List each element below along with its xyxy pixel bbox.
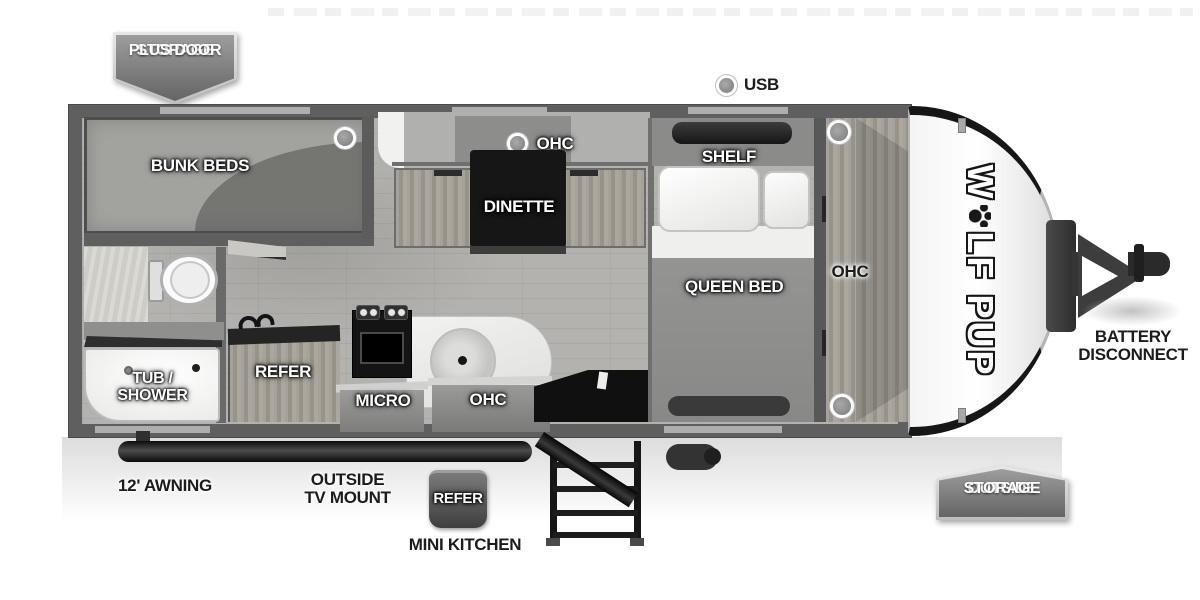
badge-border: OUTSIDE STORAGE <box>936 466 1068 520</box>
bunk-beds-label: BUNK BEDS <box>130 157 270 175</box>
refer-label: REFER <box>238 363 328 381</box>
ceiling-light-icon <box>830 123 848 141</box>
dinette-bench <box>394 168 474 248</box>
burner-grate <box>356 305 380 320</box>
step-rung <box>553 532 638 538</box>
window-segment <box>664 426 782 433</box>
entry-steps <box>544 438 654 546</box>
usb-indicator-icon <box>719 78 734 93</box>
sink-drain <box>458 356 467 365</box>
burner-grate <box>384 305 408 320</box>
bed-bolster <box>668 396 790 416</box>
hitch-shadow <box>1082 296 1182 326</box>
paw-print-icon <box>969 205 991 227</box>
toilet-seat <box>170 261 210 299</box>
front-ohc-label: OHC <box>826 263 874 281</box>
oven-window <box>360 332 404 364</box>
badge-face: OUTSIDE STORAGE <box>939 469 1065 517</box>
badge-line: STORAGE <box>964 480 1041 498</box>
tv-mount-line: TV MOUNT <box>280 489 415 507</box>
awning-tube <box>118 441 532 462</box>
hitch-pin <box>1134 244 1144 282</box>
table-base-shadow <box>470 246 566 254</box>
window-segment <box>95 426 210 433</box>
tub-shower-line: SHOWER <box>100 388 205 405</box>
floorplan-canvas: STORAGE PLUS DOOR USB BUNK BEDS TUB / SH… <box>0 0 1200 600</box>
pillow <box>658 166 760 232</box>
tub-shower-line: TUB / <box>100 371 205 388</box>
window-segment <box>688 107 788 114</box>
step-foot <box>630 538 644 546</box>
dinette-side-panel <box>378 112 404 168</box>
ceiling-light-icon <box>833 397 851 415</box>
brand-suffix: LF PUP <box>959 231 1001 377</box>
ceiling-light-icon <box>510 136 525 151</box>
tv-mount-line: OUTSIDE <box>280 471 415 489</box>
bench-bracket <box>434 170 462 176</box>
shelf-label: SHELF <box>700 148 758 166</box>
window-segment <box>160 107 310 114</box>
cropped-print-artifact <box>268 8 1193 16</box>
badge-face: STORAGE PLUS DOOR <box>116 35 234 101</box>
ceiling-light-icon <box>337 130 353 146</box>
dinette-bench <box>562 168 646 248</box>
awning-label: 12' AWNING <box>90 477 240 495</box>
outside-refer-label: REFER <box>432 491 484 507</box>
bench-bracket <box>570 170 598 176</box>
badge-border: STORAGE PLUS DOOR <box>113 32 237 104</box>
queen-bed-label: QUEEN BED <box>685 278 781 296</box>
micro-label: MICRO <box>345 392 421 410</box>
outside-tv-mount-label: OUTSIDE TV MOUNT <box>280 471 415 507</box>
underbody-tank-cap <box>704 448 721 465</box>
brand-prefix: W <box>959 165 1001 202</box>
dinette-label: DINETTE <box>483 198 555 216</box>
brand-logo: W LF PUP <box>958 121 1002 421</box>
tub-shower-label: TUB / SHOWER <box>100 371 205 405</box>
battery-disconnect-line: BATTERY <box>1068 328 1198 346</box>
battery-disconnect-label: BATTERY DISCONNECT <box>1068 328 1198 364</box>
battery-disconnect-line: DISCONNECT <box>1068 346 1198 364</box>
pillow <box>763 171 810 229</box>
interior-wall <box>362 117 374 239</box>
storage-plus-door-badge: STORAGE PLUS DOOR <box>113 32 237 104</box>
usb-label: USB <box>744 76 788 94</box>
kitchen-ohc-label: OHC <box>462 391 514 409</box>
shelf-bar <box>672 122 792 144</box>
outside-storage-badge: OUTSIDE STORAGE <box>936 466 1068 520</box>
mini-kitchen-label: MINI KITCHEN <box>395 536 535 554</box>
step-foot <box>546 538 560 546</box>
step-rung <box>553 510 638 516</box>
bedroom-wall <box>814 118 826 422</box>
badge-line: PLUS DOOR <box>129 42 221 60</box>
